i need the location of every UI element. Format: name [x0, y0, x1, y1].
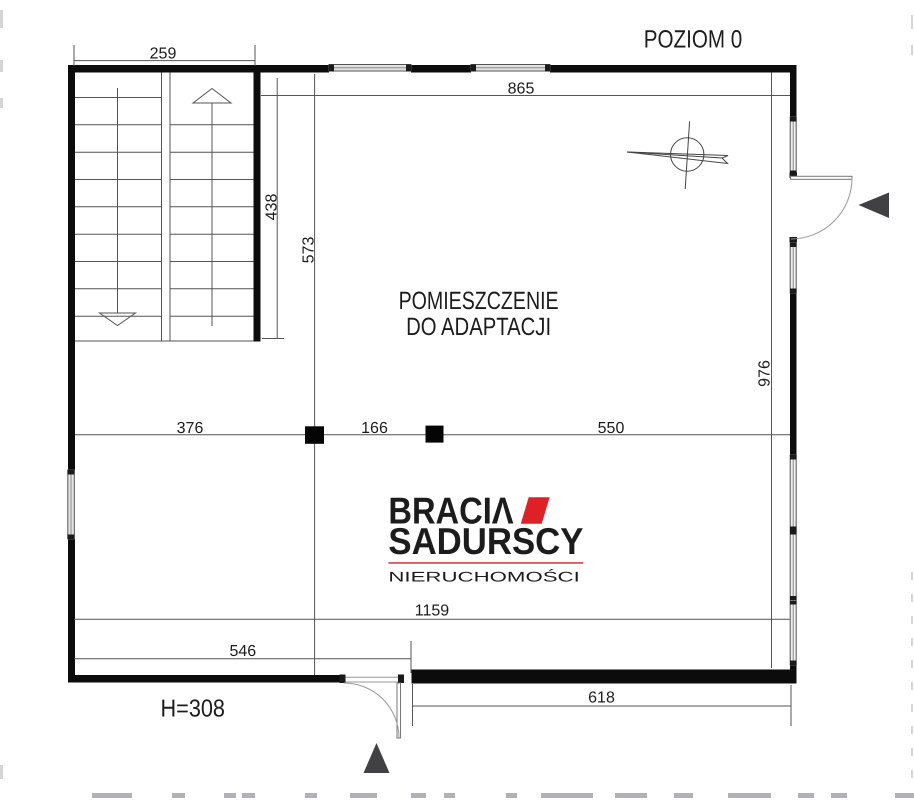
svg-text:H=308: H=308 [161, 696, 226, 723]
svg-text:865: 865 [508, 81, 535, 98]
svg-text:976: 976 [757, 360, 774, 387]
svg-text:546: 546 [229, 643, 256, 660]
svg-text:POMIESZCZENIE: POMIESZCZENIE [399, 287, 559, 315]
svg-text:573: 573 [301, 237, 318, 264]
svg-text:438: 438 [264, 194, 281, 221]
svg-text:376: 376 [177, 420, 204, 437]
svg-text:SADURSCY: SADURSCY [388, 520, 583, 562]
svg-text:NIERUCHOMOŚCI: NIERUCHOMOŚCI [388, 569, 579, 585]
svg-text:550: 550 [598, 420, 625, 437]
svg-text:DO ADAPTACJI: DO ADAPTACJI [406, 313, 551, 341]
svg-text:166: 166 [361, 420, 388, 437]
svg-text:618: 618 [588, 690, 615, 707]
svg-text:259: 259 [150, 45, 177, 62]
svg-text:1159: 1159 [415, 602, 450, 619]
svg-text:POZIOM 0: POZIOM 0 [644, 26, 743, 54]
